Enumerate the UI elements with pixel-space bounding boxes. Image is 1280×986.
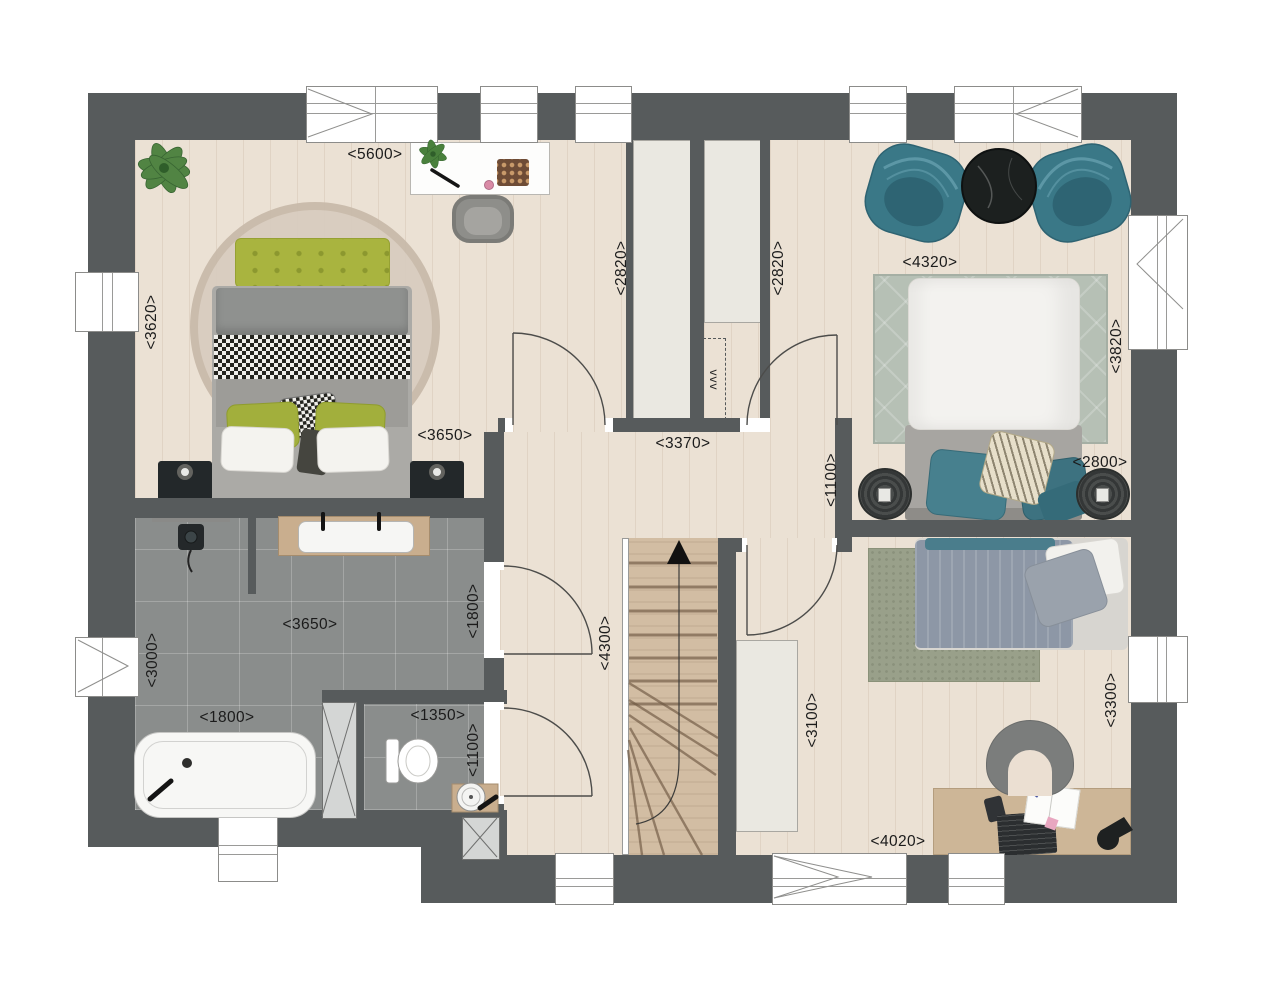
door-jamb (740, 418, 747, 432)
dim-bed2-lower: <2800> (1073, 454, 1128, 472)
dim-tub-width: <1800> (200, 709, 255, 727)
floor-plan: vvv (0, 0, 1280, 986)
dim-bath-width: <3650> (283, 616, 338, 634)
compact-mirror (484, 180, 494, 190)
makeup-palette (497, 159, 529, 186)
dim-wc-width: <1350> (411, 707, 466, 725)
window (772, 853, 907, 905)
wall (837, 538, 852, 552)
window (75, 637, 139, 697)
dim-bed3-width: <4020> (871, 833, 926, 851)
window (480, 86, 538, 143)
door-jamb (484, 796, 504, 804)
wall (605, 418, 747, 432)
dim-wc-height: <1100> (465, 723, 483, 777)
window (1128, 636, 1188, 703)
door-jamb (605, 418, 613, 432)
duct-shaft (322, 702, 357, 819)
dim-bed3-west: <3100> (804, 693, 822, 748)
window (1128, 215, 1188, 350)
wall (484, 432, 504, 562)
bed-headboard (235, 238, 390, 288)
window (575, 86, 632, 143)
wall (718, 538, 736, 855)
stool-seat (464, 207, 502, 235)
dim-bed3-east: <3300> (1103, 673, 1121, 728)
wall (852, 520, 1131, 537)
door-jamb (505, 418, 513, 432)
vanity-basin (298, 521, 414, 553)
duct-shaft (462, 817, 500, 860)
closet-left (633, 140, 692, 420)
wall (760, 140, 770, 418)
dim-master-height: <3620> (143, 295, 161, 350)
door-jamb (484, 702, 504, 710)
table-lamp (177, 464, 193, 480)
pillow-white (316, 426, 390, 473)
door-jamb (832, 538, 837, 552)
door-jamb (742, 538, 747, 552)
dim-hall-wall: <1100> (823, 453, 841, 507)
window (954, 86, 1082, 143)
bed-fold-teal (925, 538, 1055, 550)
dressing-table (410, 142, 550, 195)
window (849, 86, 907, 143)
wall (88, 140, 135, 847)
shower-partition (248, 518, 256, 594)
wall (135, 498, 500, 518)
pouf-center (1096, 488, 1109, 502)
dim-hall-width: <3370> (656, 435, 711, 453)
pouf-center (878, 488, 891, 502)
dim-master-lower: <3650> (418, 427, 473, 445)
bed-throw-houndstooth (214, 335, 410, 379)
dim-bath-east: <1800> (465, 584, 483, 639)
door-jamb (484, 650, 504, 658)
dim-master-width: <5600> (348, 146, 403, 164)
door-jamb (484, 562, 504, 570)
window (75, 272, 139, 332)
closet-right (704, 140, 762, 323)
dim-closet-left: <2820> (613, 241, 631, 296)
bathtub-rim (143, 741, 307, 809)
wall (690, 140, 704, 418)
bedroom3-wardrobe (736, 640, 798, 832)
dim-bath-height: <3000> (144, 633, 162, 688)
hall-floor-corridor (500, 538, 622, 856)
window (948, 853, 1005, 905)
desk-chair-cutout (1008, 750, 1052, 796)
pillow-white (220, 426, 295, 474)
bed-blanket (216, 288, 408, 335)
dim-hall-height: <4300> (597, 616, 615, 671)
wall (484, 804, 504, 814)
double-bed-duvet (908, 278, 1080, 430)
staircase (628, 538, 718, 855)
dim-bed2-width: <4320> (903, 254, 958, 272)
stair-stringer (622, 538, 629, 855)
dim-bed2-height: <3820> (1108, 319, 1126, 374)
table-lamp (429, 464, 445, 480)
vent-label: vvv (707, 370, 721, 391)
dim-closet-right: <2820> (770, 241, 788, 296)
window (555, 853, 614, 905)
window (306, 86, 438, 143)
